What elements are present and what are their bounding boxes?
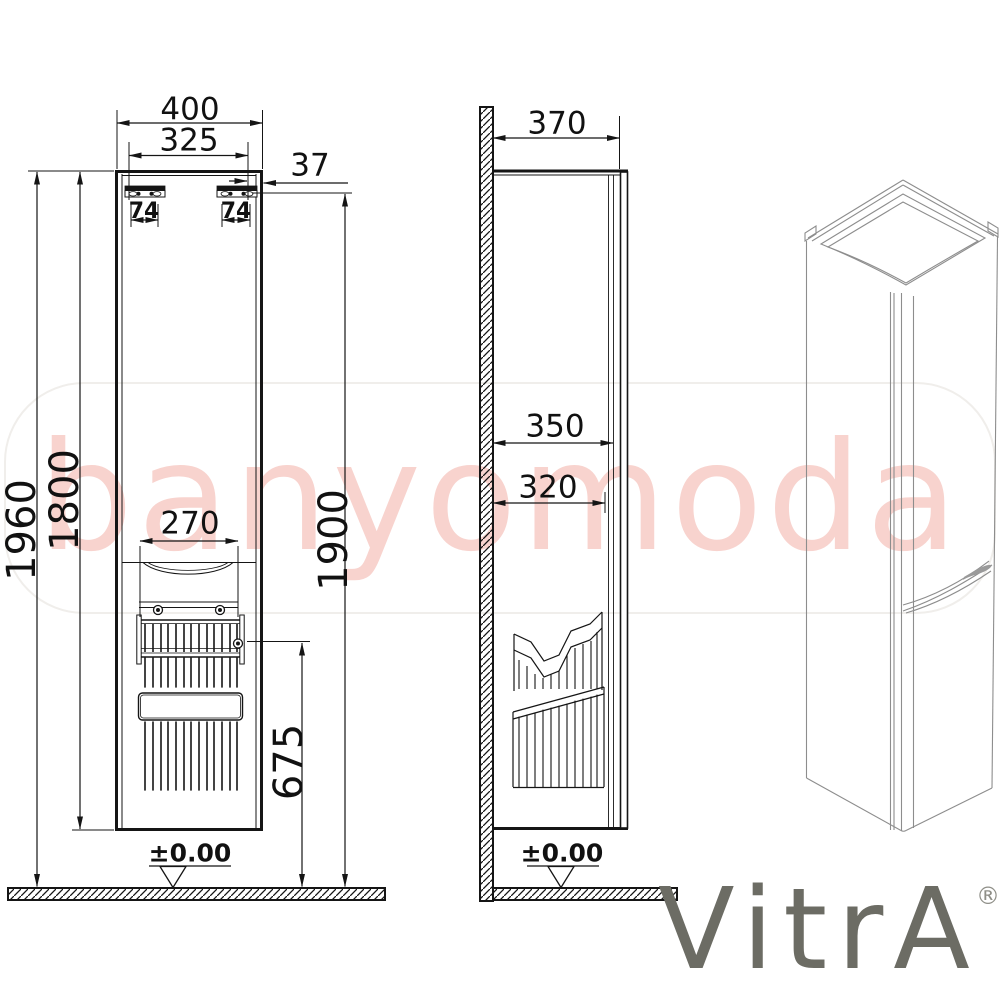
front-floor-hatch [8,888,385,900]
dim-gap-right-label: 37 [290,151,329,182]
registered-trademark-icon: ® [976,884,1000,908]
technical-drawing-page: banyomoda [0,0,1000,1000]
vitra-logo: VitrA [658,874,980,986]
side-view-linework [480,107,677,901]
front-lower-basket [139,693,243,790]
dim-basket-width-label: 270 [160,509,219,540]
dim-basket-level-label: 675 [269,724,309,800]
dim-depth-inner-label: 350 [525,412,584,443]
dim-width-overall-label: 400 [160,95,219,126]
isometric-view-linework [805,180,998,831]
dim-height-overall-label: 1960 [2,479,42,581]
side-baskets [513,612,604,788]
iso-handle-recess [903,561,992,613]
side-floor-level-label: ±0.00 [521,841,604,866]
front-bracket-right [217,186,257,197]
front-bracket-left [125,186,165,197]
dim-bracket-left-label: 74 [129,201,160,223]
dim-width-inner-label: 325 [159,126,218,157]
dim-height-rail-label: 1900 [314,489,354,591]
side-wall-hatch [480,107,493,901]
dim-depth-overall-label: 370 [527,109,586,140]
front-upper-basket [137,615,244,687]
dim-depth-basket-label: 320 [518,473,577,504]
dim-height-cabinet-label: 1800 [45,449,85,551]
side-floor-hatch [493,888,677,900]
front-floor-level-label: ±0.00 [149,841,232,866]
dim-bracket-right-label: 74 [221,201,252,223]
